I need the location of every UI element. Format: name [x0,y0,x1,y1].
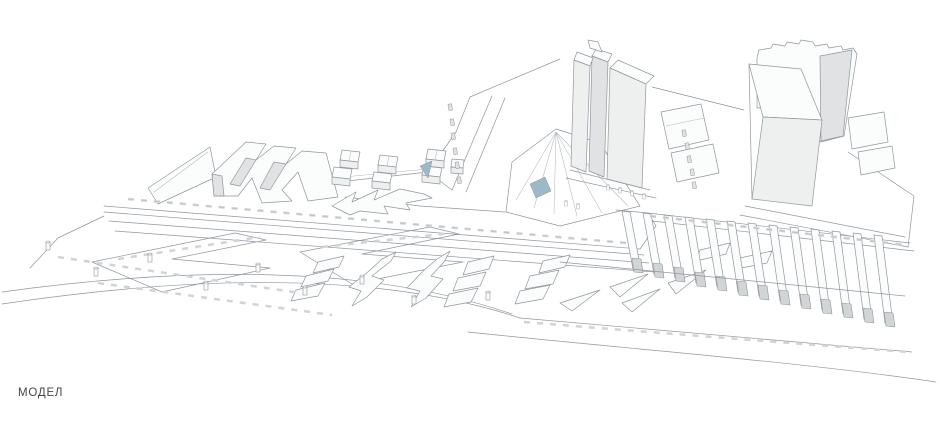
bush [565,200,568,206]
m-building-wall [212,174,224,196]
planter [525,270,559,289]
zigzag-bench [332,189,432,215]
zigzag-planter [349,252,396,306]
pavilion-front [332,177,350,186]
model-label: МОДЕЛ [18,387,63,399]
parked-car [451,133,456,140]
tower-face [607,68,646,188]
triangle-planter [560,290,600,311]
flat-lot [148,147,216,204]
slab-end [863,308,874,323]
parked-car [692,182,697,189]
parking-lots [92,227,463,292]
midrise-block [661,104,709,149]
bush [619,187,622,193]
tower-terrace-line [745,206,905,237]
parked-car [682,130,687,137]
bush-row [565,184,646,209]
parked-car [448,104,453,111]
tree [204,281,208,290]
m-building [148,142,338,204]
parking-loop [92,233,270,292]
slab-end [779,290,790,305]
notched-slab-side [820,50,852,141]
tree [360,275,364,284]
site-south-edge [2,283,520,318]
bush [631,190,634,196]
right-tower-complex [749,40,895,206]
east-block [848,112,888,149]
parked-car [687,156,692,163]
parked-car [685,143,690,150]
bench-ribbon [332,189,432,215]
parked-car [457,177,462,184]
tree [303,286,307,295]
slab-end [758,285,769,300]
parked-car [455,162,460,169]
tree [486,291,490,300]
parked-car [450,119,455,126]
parked-car-row [524,322,908,352]
model-viewport: МОДЕЛ [0,0,940,423]
tree [94,267,98,276]
slab-end [695,272,706,287]
slab-end [653,263,664,278]
site-north-edge [470,59,560,97]
left-road-branch [30,216,104,268]
triangle-planter [610,274,648,297]
bottom-road-edge [468,332,936,382]
bush [607,184,610,190]
midrise-block [671,144,719,182]
east-block [858,146,895,175]
tree [256,263,260,272]
water-feature [530,177,551,198]
tree [148,253,152,262]
slab-end [800,294,811,309]
slab-front-path [560,262,905,296]
main-tower-face [752,117,822,206]
planter [444,288,478,307]
slab-end [821,299,832,314]
tower-face [589,56,608,177]
slab-end [842,303,853,318]
slab-end [632,258,643,273]
bush [577,203,580,209]
tower-face [571,60,590,172]
tree [412,295,416,304]
site-model-drawing [0,0,940,423]
pavilion-front [372,181,390,190]
bush [643,193,646,199]
slab-end [737,281,748,296]
tower-edge [749,64,752,199]
center-towers [566,40,719,198]
planter [453,272,486,291]
slab-end [884,312,895,327]
parked-car [453,148,458,155]
tree [46,241,50,250]
pavilion-front [422,175,440,184]
triangle-planter [622,289,660,312]
parked-car [690,169,695,176]
planter [539,255,570,273]
